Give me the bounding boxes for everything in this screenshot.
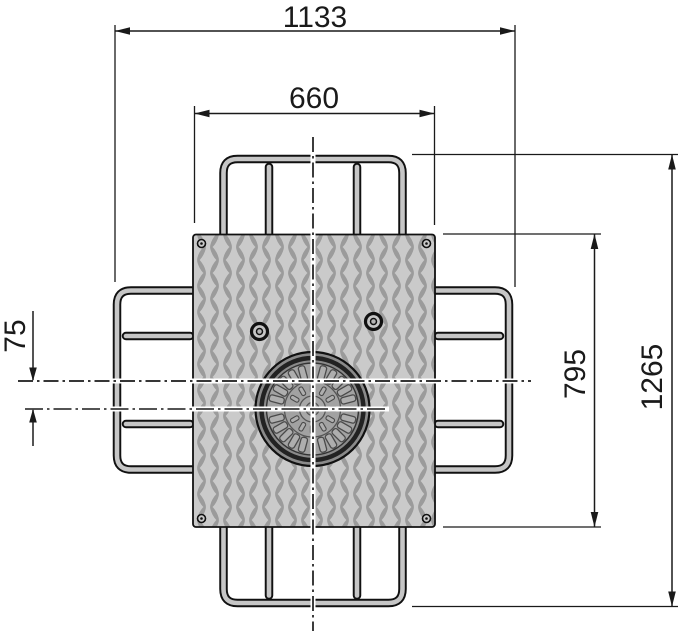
dim-offset-label: 75 [0,319,32,352]
dim-plate-depth-label: 795 [559,349,592,399]
dim-overall-depth-label: 1265 [636,344,669,411]
technical-drawing: 1133 660 75 795 1265 [0,0,680,633]
dim-overall-width-label: 1133 [283,1,348,34]
dim-plate-width-label: 660 [289,82,339,115]
